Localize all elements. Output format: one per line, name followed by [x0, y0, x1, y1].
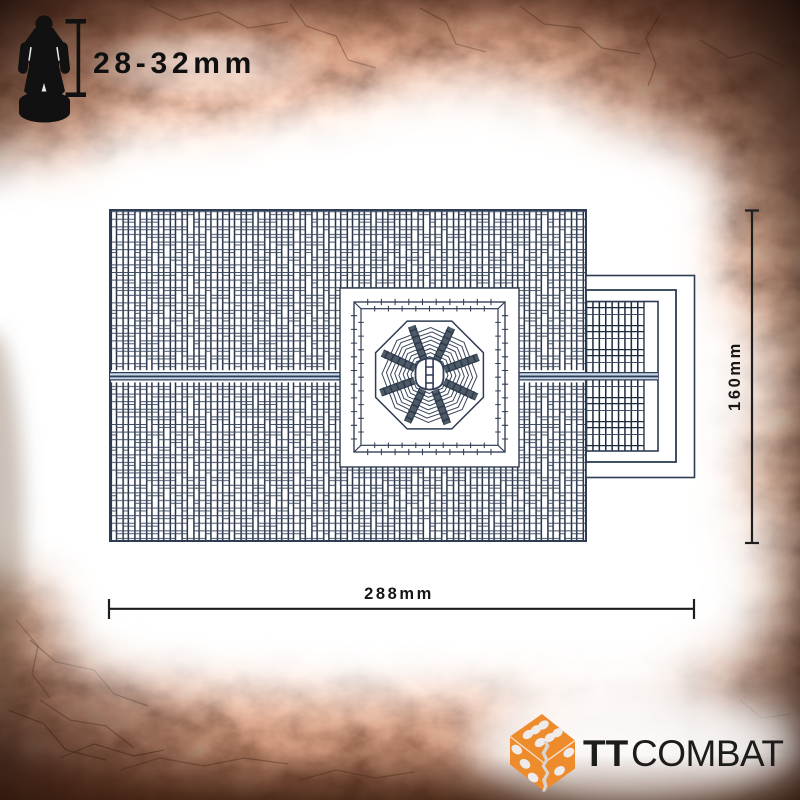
svg-text:28-32mm: 28-32mm [93, 47, 256, 80]
svg-text:COMBAT: COMBAT [631, 733, 784, 774]
svg-text:160mm: 160mm [726, 341, 744, 411]
svg-text:TT: TT [583, 733, 629, 774]
svg-text:288mm: 288mm [364, 585, 434, 603]
